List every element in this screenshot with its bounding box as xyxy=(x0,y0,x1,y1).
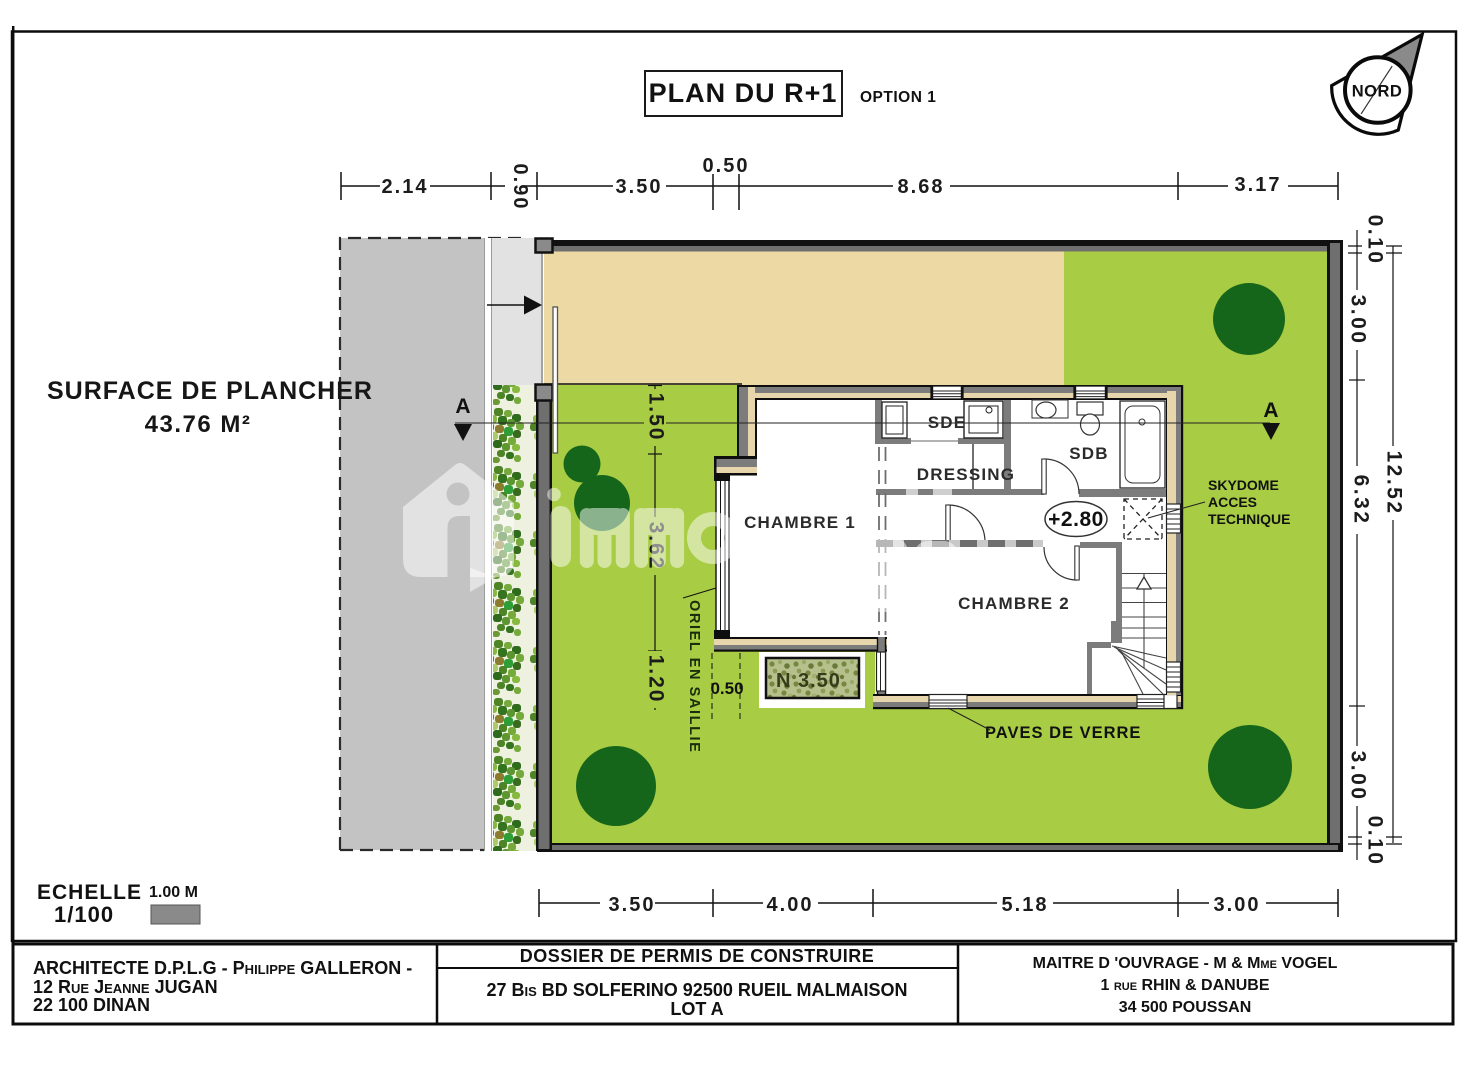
svg-text:1/100: 1/100 xyxy=(54,902,114,927)
svg-text:DOSSIER DE PERMIS DE CONSTRUIR: DOSSIER DE PERMIS DE CONSTRUIRE xyxy=(520,946,875,966)
svg-text:22 100 DINAN: 22 100 DINAN xyxy=(33,995,150,1015)
svg-text:1.20: 1.20 xyxy=(644,655,667,704)
svg-text:PLAN DU R+1: PLAN DU R+1 xyxy=(649,78,838,108)
svg-text:LOT A: LOT A xyxy=(670,999,723,1019)
svg-text:3.00: 3.00 xyxy=(1346,751,1369,802)
svg-text:ECHELLE: ECHELLE xyxy=(37,881,142,904)
svg-text:TECHNIQUE: TECHNIQUE xyxy=(1208,511,1290,527)
svg-text:3.50: 3.50 xyxy=(616,176,663,198)
svg-text:ARCHITECTE D.P.L.G - Philippe: ARCHITECTE D.P.L.G - Philippe GALLERON - xyxy=(33,958,412,978)
svg-text:6.32: 6.32 xyxy=(1349,475,1372,526)
svg-text:SKYDOME: SKYDOME xyxy=(1208,477,1279,493)
svg-text:ORIEL EN SAILLIE: ORIEL EN SAILLIE xyxy=(686,600,702,753)
svg-text:43.76 M²: 43.76 M² xyxy=(145,411,252,438)
svg-text:SURFACE DE PLANCHER: SURFACE DE PLANCHER xyxy=(47,377,373,405)
svg-text:PAVES DE VERRE: PAVES DE VERRE xyxy=(985,724,1141,742)
svg-text:A: A xyxy=(1263,399,1278,422)
svg-text:CHAMBRE 2: CHAMBRE 2 xyxy=(958,594,1070,613)
svg-text:3.17: 3.17 xyxy=(1235,174,1282,196)
svg-text:0.50: 0.50 xyxy=(710,679,743,698)
svg-text:SDB: SDB xyxy=(1069,444,1109,463)
svg-text:N 3.50: N 3.50 xyxy=(776,670,841,692)
svg-text:SDE: SDE xyxy=(928,413,967,432)
svg-text:12.52: 12.52 xyxy=(1382,450,1405,515)
svg-text:NORD: NORD xyxy=(1352,83,1403,101)
svg-text:27 Bis BD SOLFERINO 92500 RUEI: 27 Bis BD SOLFERINO 92500 RUEIL MALMAISO… xyxy=(486,980,907,1000)
svg-text:1 rue RHIN & DANUBE: 1 rue RHIN & DANUBE xyxy=(1100,977,1269,994)
svg-text:3.50: 3.50 xyxy=(609,894,656,916)
svg-text:0.50: 0.50 xyxy=(703,155,750,177)
svg-text:A: A xyxy=(455,395,470,418)
svg-text:DRESSING: DRESSING xyxy=(917,465,1015,484)
svg-text:1.50: 1.50 xyxy=(644,393,667,442)
svg-text:3.00: 3.00 xyxy=(1214,894,1261,916)
svg-text:2.14: 2.14 xyxy=(382,176,429,198)
svg-text:0.10: 0.10 xyxy=(1363,816,1386,867)
svg-text:0.10: 0.10 xyxy=(1363,215,1386,266)
svg-text:12 Rue Jeanne JUGAN: 12 Rue Jeanne JUGAN xyxy=(33,977,218,997)
svg-text:34 500 POUSSAN: 34 500 POUSSAN xyxy=(1119,999,1252,1016)
svg-text:4.00: 4.00 xyxy=(767,894,814,916)
svg-text:CHAMBRE 1: CHAMBRE 1 xyxy=(744,513,856,532)
svg-text:5.18: 5.18 xyxy=(1002,894,1049,916)
svg-text:OPTION 1: OPTION 1 xyxy=(860,89,936,106)
svg-text:0.90: 0.90 xyxy=(509,164,531,211)
svg-text:+2.80: +2.80 xyxy=(1048,508,1104,531)
svg-text:ACCES: ACCES xyxy=(1208,494,1257,510)
svg-text:3.00: 3.00 xyxy=(1346,295,1369,346)
svg-text:1.00 M: 1.00 M xyxy=(149,884,198,901)
svg-text:MAITRE D 'OUVRAGE - M & Mme V: MAITRE D 'OUVRAGE - M & Mme VOGEL xyxy=(1033,955,1338,972)
svg-text:8.68: 8.68 xyxy=(898,176,945,198)
